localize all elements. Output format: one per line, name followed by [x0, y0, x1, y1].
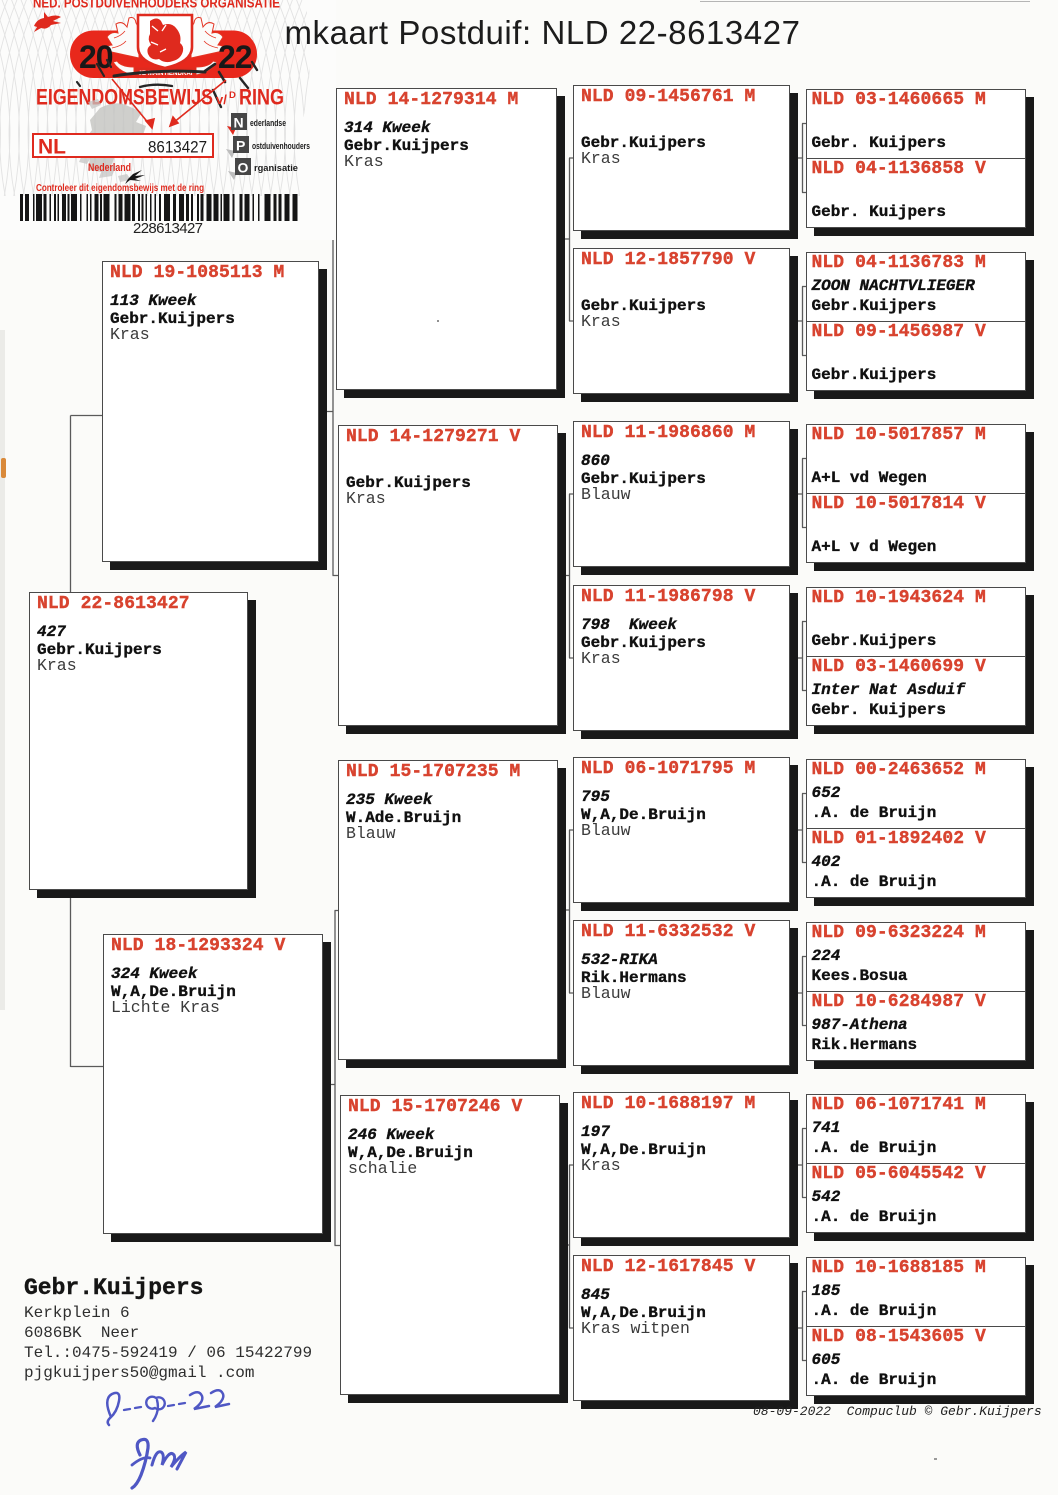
svg-text:22: 22 [218, 39, 252, 75]
svg-text:ostduivenhouders: ostduivenhouders [252, 141, 310, 151]
svg-text:rganisatie: rganisatie [254, 163, 298, 173]
svg-text:O: O [238, 160, 249, 176]
svg-text:228613427: 228613427 [133, 220, 203, 237]
svg-text:NED. POSTDUIVENHOUDERS ORGANIS: NED. POSTDUIVENHOUDERS ORGANISATIE [33, 0, 280, 11]
svg-text:RING: RING [239, 85, 284, 110]
svg-text:D: D [229, 90, 236, 101]
svg-text:N: N [234, 115, 244, 131]
svg-text:ederlandse: ederlandse [250, 118, 286, 128]
svg-text:v/: v/ [216, 92, 227, 107]
svg-text:P: P [236, 138, 245, 154]
svg-text:NL: NL [38, 136, 66, 159]
svg-text:Controleer dit eigendomsbewijs: Controleer dit eigendomsbewijs met de ri… [36, 182, 204, 194]
svg-text:8613427: 8613427 [148, 138, 207, 157]
svg-text:20: 20 [79, 39, 113, 75]
svg-text:Nederland: Nederland [88, 162, 131, 174]
